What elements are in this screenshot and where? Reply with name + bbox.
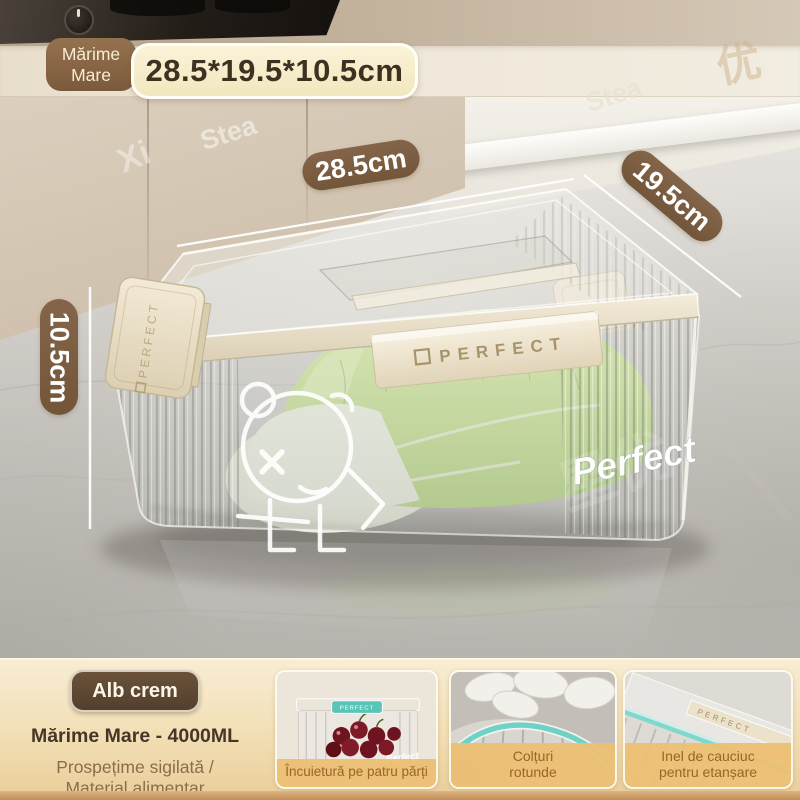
left-clasp: PERFECT xyxy=(104,276,213,401)
size-badge: Mărime Mare xyxy=(46,38,136,91)
thumbnail-caption: Inel de cauciuc pentru etanșare xyxy=(625,743,791,787)
box-reflection xyxy=(160,540,672,650)
panel-bottom-strip xyxy=(0,791,800,800)
thumbnail-caption: Colțuri rotunde xyxy=(451,743,615,787)
dimensions-badge: 28.5*19.5*10.5cm xyxy=(131,43,418,99)
thumbnail-seal: PERFECT Inel de cauciuc pentru etanșare xyxy=(623,670,793,789)
size-volume-text: Mărime Mare - 4000ML xyxy=(10,725,260,748)
height-label-text: 10.5cm xyxy=(44,311,75,403)
product-info: Alb crem Mărime Mare - 4000ML Prospețime… xyxy=(10,668,260,799)
thumbnail-caption: Încuietură pe patru părți xyxy=(277,759,436,787)
height-label: 10.5cm xyxy=(40,299,78,415)
kitchen-photo: Xi Stea Stea 优 星优 xyxy=(0,0,800,658)
info-panel: Alb crem Mărime Mare - 4000ML Prospețime… xyxy=(0,658,800,800)
thumbnail-locking: PERFECT Perfect Încuietură pe patru părț… xyxy=(275,670,438,789)
color-option-button: Alb crem xyxy=(70,670,200,712)
product-image: Xi Stea Stea 优 星优 xyxy=(0,0,800,800)
thumb-brand-label: PERFECT xyxy=(340,706,374,712)
thumbnail-corners: Colțuri rotunde xyxy=(449,670,617,789)
